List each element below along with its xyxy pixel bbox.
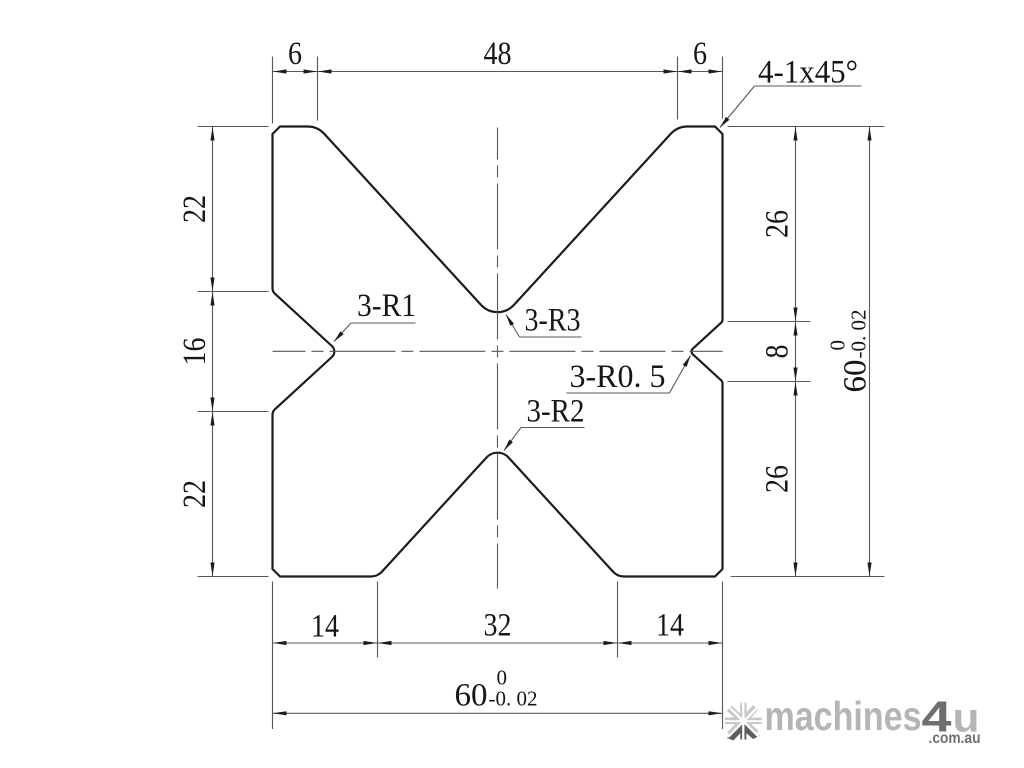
svg-text:6: 6: [288, 36, 302, 72]
svg-text:machines: machines: [765, 693, 922, 739]
svg-text:.com.au: .com.au: [929, 730, 981, 747]
svg-text:-0. 02: -0. 02: [489, 687, 538, 711]
svg-text:26: 26: [760, 465, 796, 493]
svg-text:48: 48: [484, 36, 512, 72]
svg-text:8: 8: [760, 345, 796, 359]
svg-text:22: 22: [177, 480, 213, 508]
svg-text:3-R0. 5: 3-R0. 5: [570, 359, 666, 395]
svg-text:14: 14: [656, 608, 684, 644]
svg-text:22: 22: [177, 195, 213, 223]
svg-text:60: 60: [838, 360, 874, 393]
svg-text:3-R2: 3-R2: [527, 394, 585, 430]
svg-text:3-R1: 3-R1: [357, 288, 416, 324]
svg-text:4-1x45°: 4-1x45°: [758, 55, 858, 91]
svg-text:14: 14: [311, 609, 339, 645]
svg-text:16: 16: [177, 338, 213, 366]
svg-text:-0. 02: -0. 02: [847, 310, 871, 359]
svg-text:32: 32: [484, 608, 512, 644]
svg-text:3-R3: 3-R3: [525, 303, 581, 339]
svg-text:60: 60: [455, 678, 488, 714]
svg-text:6: 6: [693, 36, 707, 72]
svg-text:26: 26: [760, 210, 796, 238]
